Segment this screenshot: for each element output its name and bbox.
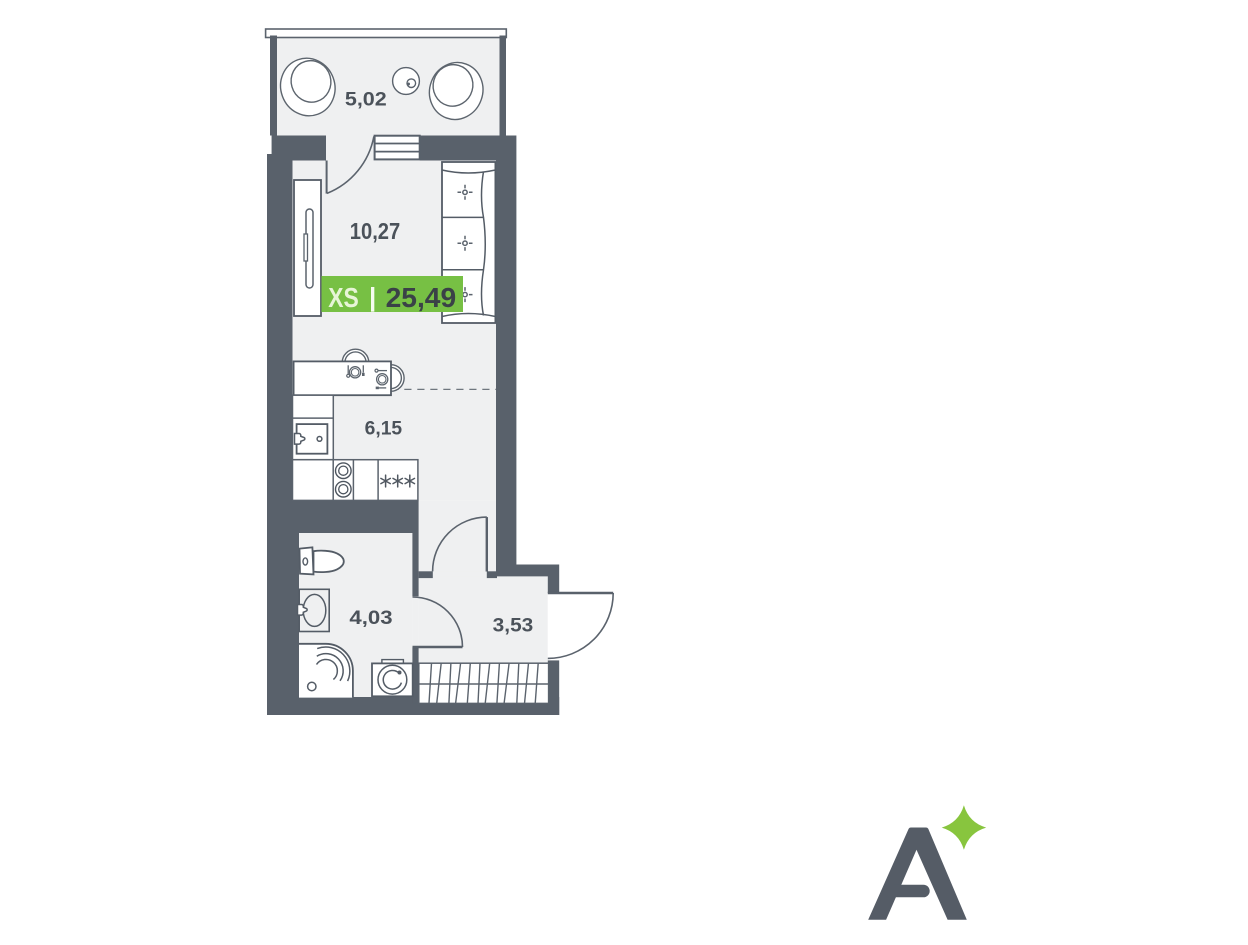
svg-text:|: |	[369, 282, 376, 312]
svg-text:XS: XS	[328, 282, 359, 313]
svg-text:25,49: 25,49	[386, 282, 457, 313]
svg-text:6,15: 6,15	[365, 417, 403, 439]
svg-text:4,03: 4,03	[349, 607, 392, 629]
svg-text:10,27: 10,27	[350, 218, 401, 244]
svg-text:5,02: 5,02	[345, 88, 387, 110]
svg-text:3,53: 3,53	[493, 614, 534, 636]
